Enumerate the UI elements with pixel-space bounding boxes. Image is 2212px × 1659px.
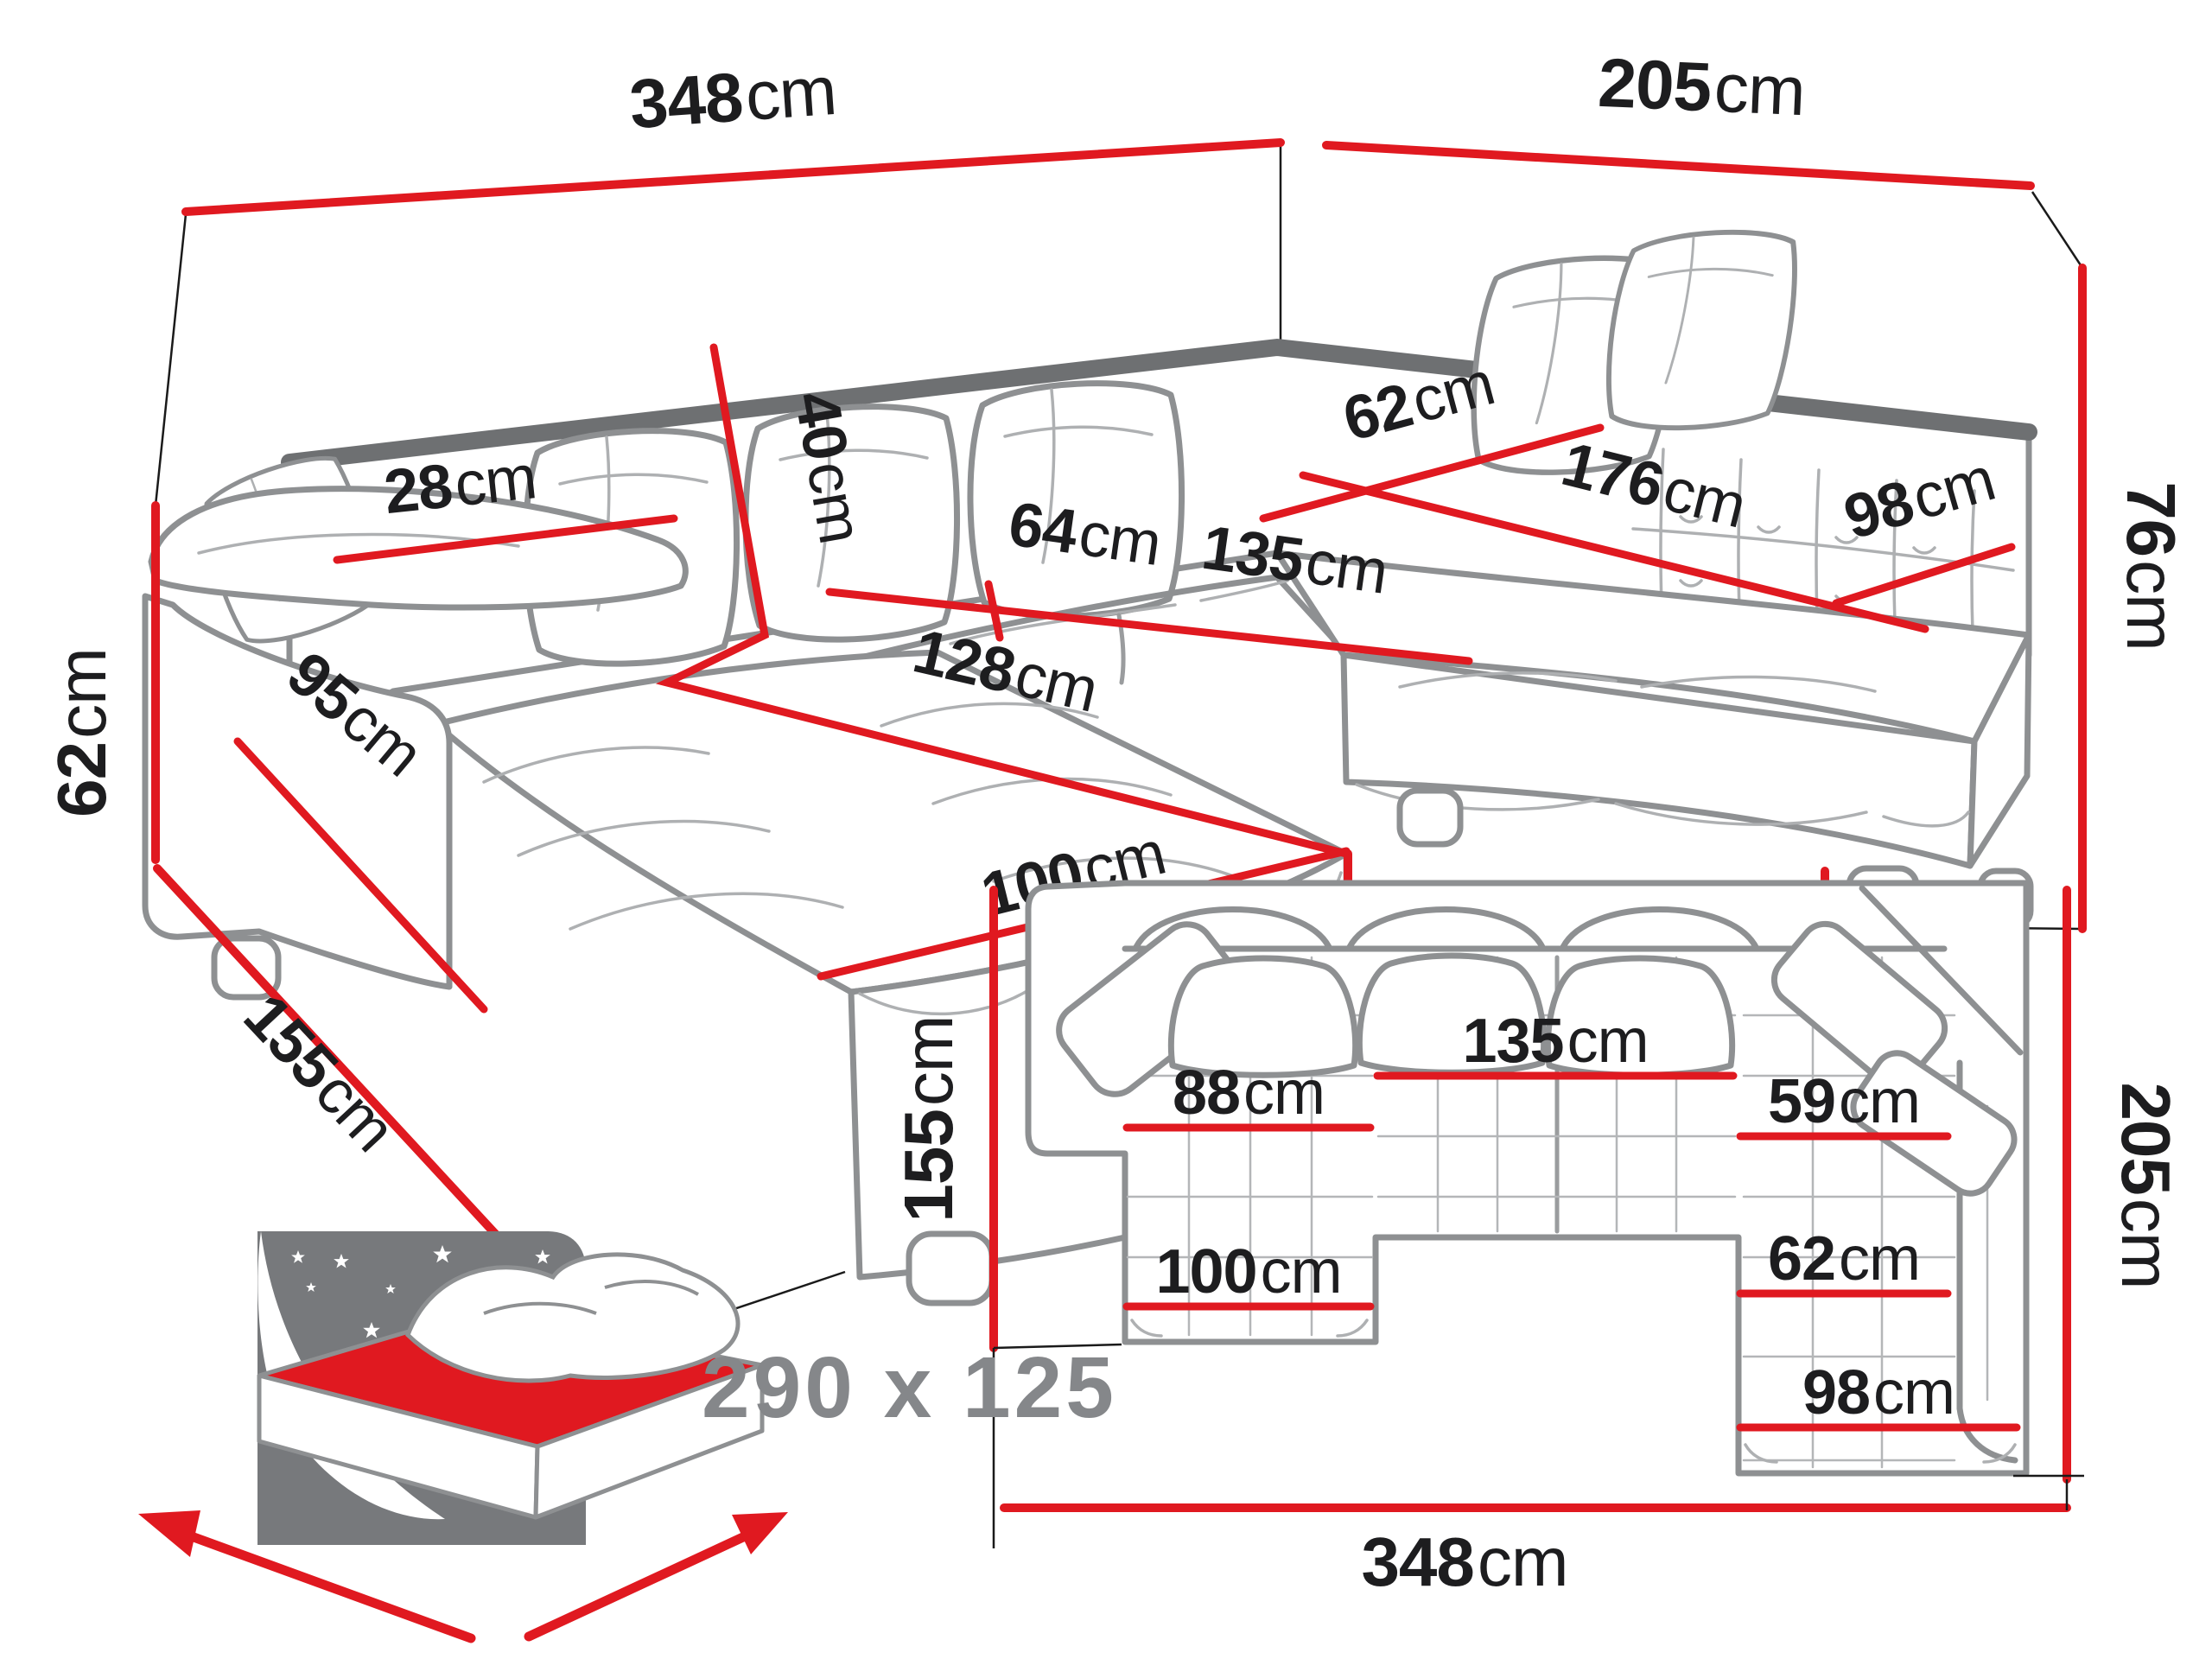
sleeping-area-size: 290 x 125 — [702, 1339, 1117, 1436]
dim-line-total-side — [1326, 145, 2031, 186]
diagram-canvas: 348cm 205cm 76cm 62cm 95cm 155cm 28cm 40… — [0, 0, 2212, 1659]
dim-plan-right-seat-depth: 62cm — [1768, 1224, 1920, 1294]
dim-armrest-height: 62cm — [43, 648, 120, 817]
dim-plan-chaise-depth: 155cm — [890, 1015, 967, 1222]
dim-total-side: 205cm — [1597, 44, 1807, 130]
sofa-leg — [1400, 791, 1460, 844]
dim-plan-right-seat-width: 59cm — [1768, 1067, 1920, 1136]
dim-plan-middle-width: 135cm — [1462, 1007, 1648, 1076]
dim-plan-total-side: 205cm — [2107, 1082, 2184, 1288]
dim-total-width: 348cm — [627, 52, 839, 143]
pillow-icon — [1171, 958, 1355, 1075]
dim-plan-total-width: 348cm — [1361, 1523, 1567, 1600]
sofa-leg — [909, 1234, 992, 1303]
dim-line-total-width — [186, 143, 1281, 212]
arrow-right — [529, 1536, 745, 1637]
dim-plan-right-end-width: 98cm — [1802, 1358, 1955, 1427]
dim-plan-chaise-seat-width: 88cm — [1173, 1058, 1325, 1128]
dim-backrest-height: 76cm — [2113, 481, 2190, 651]
dimension-diagram: 348cm 205cm 76cm 62cm 95cm 155cm 28cm 40… — [0, 0, 2212, 1659]
dim-chaise-total-depth: 155cm — [231, 982, 408, 1165]
dim-plan-chaise-width: 100cm — [1155, 1237, 1341, 1306]
pillow-icon — [1599, 232, 1803, 428]
arrow-left-head-icon — [138, 1510, 200, 1557]
arrow-left — [187, 1535, 471, 1638]
